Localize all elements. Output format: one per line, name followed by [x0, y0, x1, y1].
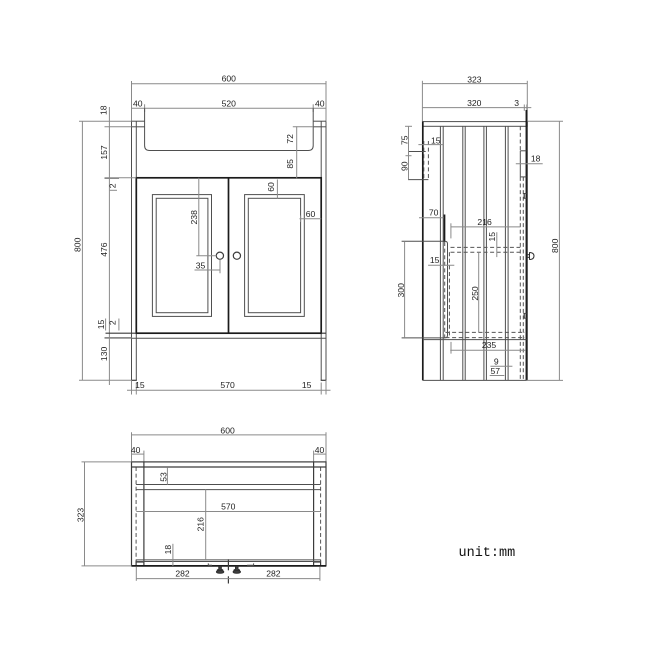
svg-text:72: 72: [285, 134, 295, 144]
svg-text:40: 40: [131, 445, 141, 455]
svg-text:2: 2: [108, 183, 118, 188]
svg-text:40: 40: [315, 445, 325, 455]
svg-text:40: 40: [133, 98, 143, 108]
svg-text:250: 250: [470, 286, 480, 301]
svg-text:35: 35: [196, 260, 206, 270]
svg-text:unit:mm: unit:mm: [459, 546, 516, 561]
svg-text:216: 216: [477, 217, 492, 227]
svg-text:75: 75: [400, 135, 410, 145]
svg-text:130: 130: [99, 347, 109, 362]
svg-text:15: 15: [135, 380, 145, 390]
svg-text:60: 60: [266, 182, 276, 192]
svg-text:235: 235: [482, 340, 497, 350]
svg-text:15: 15: [302, 380, 312, 390]
svg-text:570: 570: [220, 380, 235, 390]
svg-text:18: 18: [163, 545, 173, 555]
svg-text:60: 60: [306, 209, 316, 219]
svg-text:238: 238: [189, 210, 199, 225]
svg-text:15: 15: [431, 136, 441, 146]
svg-text:570: 570: [221, 502, 236, 512]
svg-text:600: 600: [222, 74, 237, 84]
svg-text:800: 800: [550, 238, 560, 253]
svg-text:323: 323: [76, 508, 86, 523]
svg-text:3: 3: [514, 98, 519, 108]
svg-text:216: 216: [196, 517, 206, 532]
svg-text:57: 57: [491, 366, 501, 376]
svg-text:800: 800: [73, 237, 83, 252]
svg-text:282: 282: [175, 569, 190, 579]
svg-text:15: 15: [430, 255, 440, 265]
svg-text:40: 40: [315, 98, 325, 108]
svg-text:85: 85: [285, 159, 295, 169]
svg-text:53: 53: [158, 472, 168, 482]
svg-text:15: 15: [96, 320, 106, 330]
svg-text:18: 18: [98, 105, 108, 115]
svg-text:320: 320: [467, 98, 482, 108]
svg-text:157: 157: [99, 145, 109, 160]
svg-text:323: 323: [467, 74, 482, 84]
svg-text:18: 18: [531, 154, 541, 164]
svg-text:300: 300: [396, 283, 406, 298]
svg-text:70: 70: [429, 208, 439, 218]
svg-text:90: 90: [400, 161, 410, 171]
svg-text:282: 282: [266, 569, 281, 579]
svg-text:476: 476: [99, 242, 109, 257]
svg-text:520: 520: [222, 98, 237, 108]
svg-text:600: 600: [220, 426, 235, 436]
svg-text:15: 15: [487, 232, 497, 242]
svg-text:2: 2: [108, 320, 118, 325]
